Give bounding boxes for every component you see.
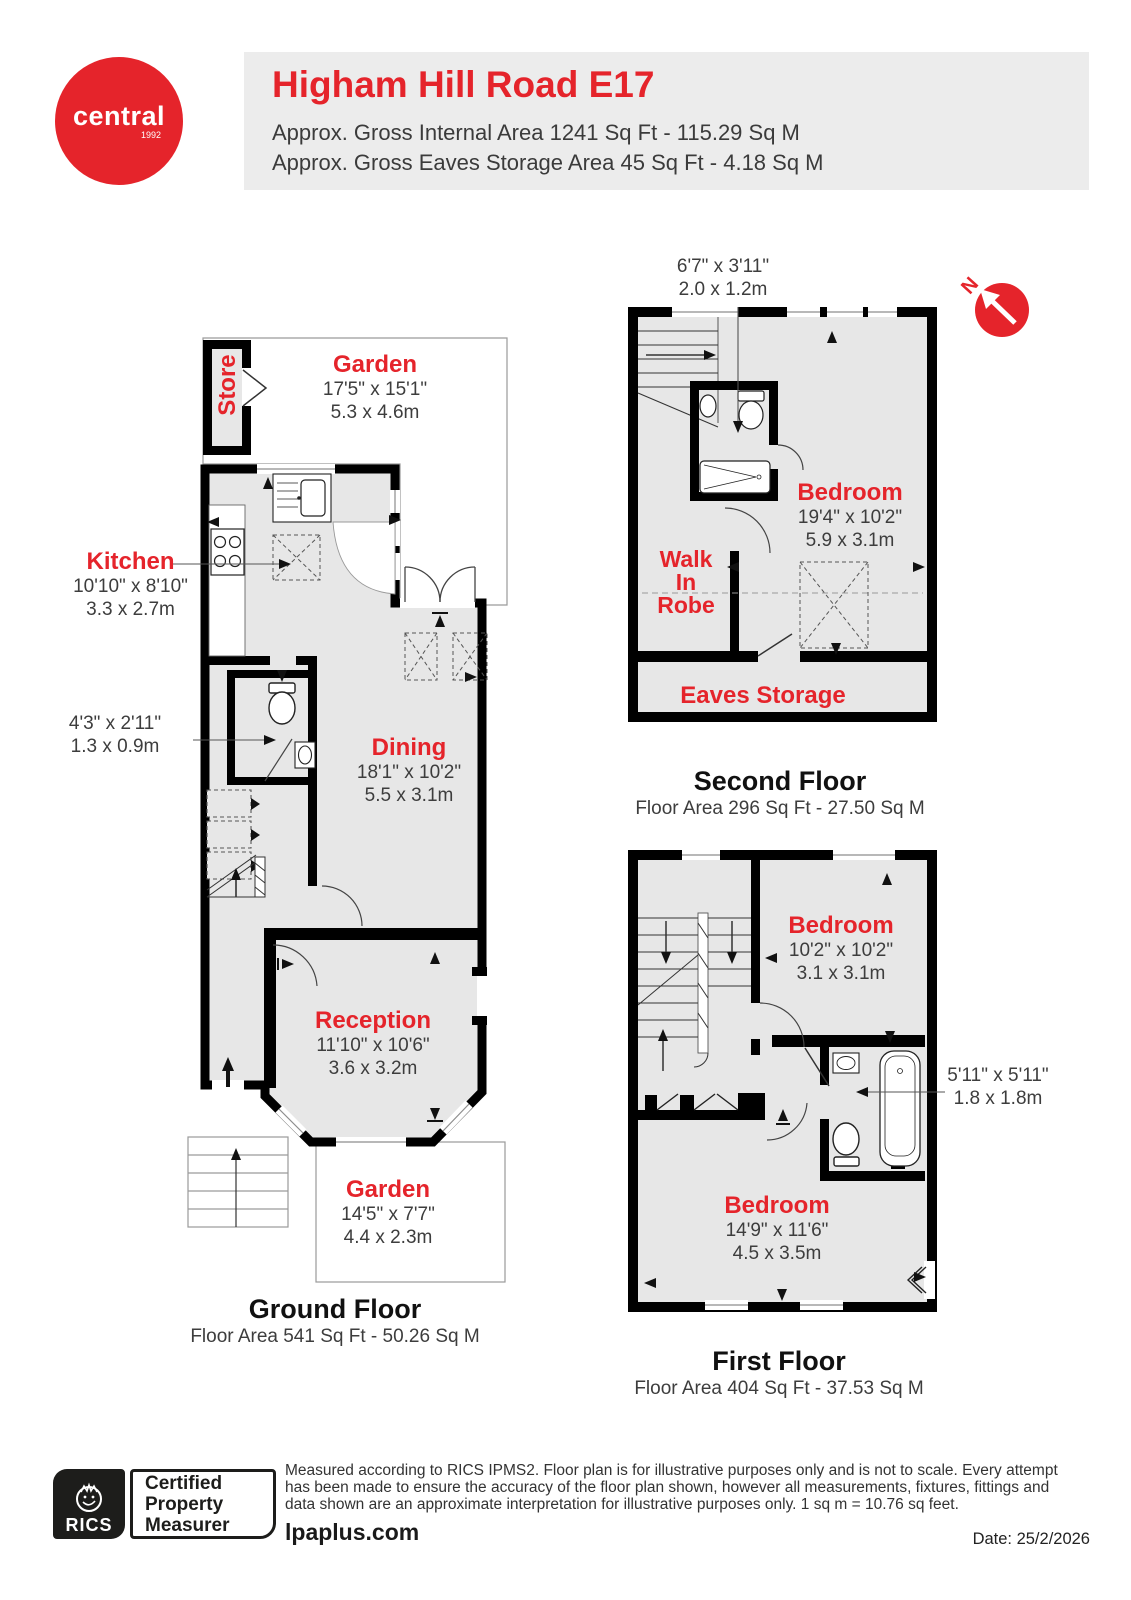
shower-sink-icon — [700, 395, 716, 417]
garden-top-label: Garden 17'5" x 15'1" 5.3 x 4.6m — [275, 352, 475, 424]
compass-icon: N — [960, 270, 1036, 346]
toilet-icon — [269, 692, 295, 724]
bathtub-icon — [880, 1051, 920, 1166]
date-text: Date: 25/2/2026 — [920, 1530, 1090, 1549]
garden-bottom-label: Garden 14'5" x 7'7" 4.4 x 2.3m — [288, 1177, 488, 1249]
store-label: Store — [215, 353, 241, 417]
gross-eaves-area: Approx. Gross Eaves Storage Area 45 Sq F… — [272, 150, 824, 176]
website-text: lpaplus.com — [285, 1519, 419, 1546]
gross-internal-area: Approx. Gross Internal Area 1241 Sq Ft -… — [272, 120, 800, 146]
page-title: Higham Hill Road E17 — [272, 64, 654, 106]
reception-label: Reception 11'10" x 10'6" 3.6 x 3.2m — [273, 1008, 473, 1080]
entrance-steps — [188, 1137, 288, 1227]
ground-floor-plan — [60, 330, 520, 1290]
header-panel: Higham Hill Road E17 Approx. Gross Inter… — [244, 52, 1089, 190]
shower-toilet-icon — [739, 401, 763, 429]
rics-lion-icon — [71, 1482, 107, 1516]
floorplan-page: central 1992 Higham Hill Road E17 Approx… — [0, 0, 1131, 1600]
logo-brand: central — [73, 103, 165, 129]
rics-brand-text: RICS — [65, 1516, 112, 1534]
rics-measurer-line: Measurer — [145, 1515, 273, 1536]
first-bedroom-bottom-label: Bedroom 14'9" x 11'6" 4.5 x 3.5m — [677, 1193, 877, 1265]
logo-year: 1992 — [141, 130, 161, 140]
rics-certified-line: Certified — [145, 1473, 273, 1494]
wc-label: 4'3" x 2'11" 1.3 x 0.9m — [35, 712, 195, 758]
eaves-storage-label: Eaves Storage — [663, 683, 863, 709]
second-floor-caption: Second Floor Floor Area 296 Sq Ft - 27.5… — [590, 766, 970, 822]
rics-certified-box: Certified Property Measurer — [130, 1469, 276, 1539]
compass-north-label: N — [960, 273, 983, 298]
ground-floor-caption: Ground Floor Floor Area 541 Sq Ft - 50.2… — [135, 1294, 535, 1350]
second-shower-dims-label: 6'7" x 3'11" 2.0 x 1.2m — [623, 255, 823, 301]
kitchen-sink-icon — [273, 474, 331, 522]
walk-in-robe-label: Walk In Robe — [650, 548, 722, 617]
first-floor-caption: First Floor Floor Area 404 Sq Ft - 37.53… — [589, 1346, 969, 1402]
dining-label: Dining 18'1" x 10'2" 5.5 x 3.1m — [309, 735, 509, 807]
bath-toilet-icon — [833, 1123, 859, 1155]
rics-logo: RICS — [53, 1469, 125, 1539]
rics-property-line: Property — [145, 1494, 273, 1515]
rics-badge: RICS Certified Property Measurer — [53, 1469, 276, 1539]
central-logo: central 1992 — [55, 57, 183, 185]
first-bedroom-top-label: Bedroom 10'2" x 10'2" 3.1 x 3.1m — [741, 913, 941, 985]
disclaimer-text: Measured according to RICS IPMS2. Floor … — [285, 1462, 1075, 1513]
second-bedroom-label: Bedroom 19'4" x 10'2" 5.9 x 3.1m — [750, 480, 950, 552]
bathroom-dims-label: 5'11" x 5'11" 1.8 x 1.8m — [938, 1064, 1058, 1110]
kitchen-label: Kitchen 10'10" x 8'10" 3.3 x 2.7m — [28, 549, 233, 621]
understairs-cupboards — [207, 790, 251, 879]
